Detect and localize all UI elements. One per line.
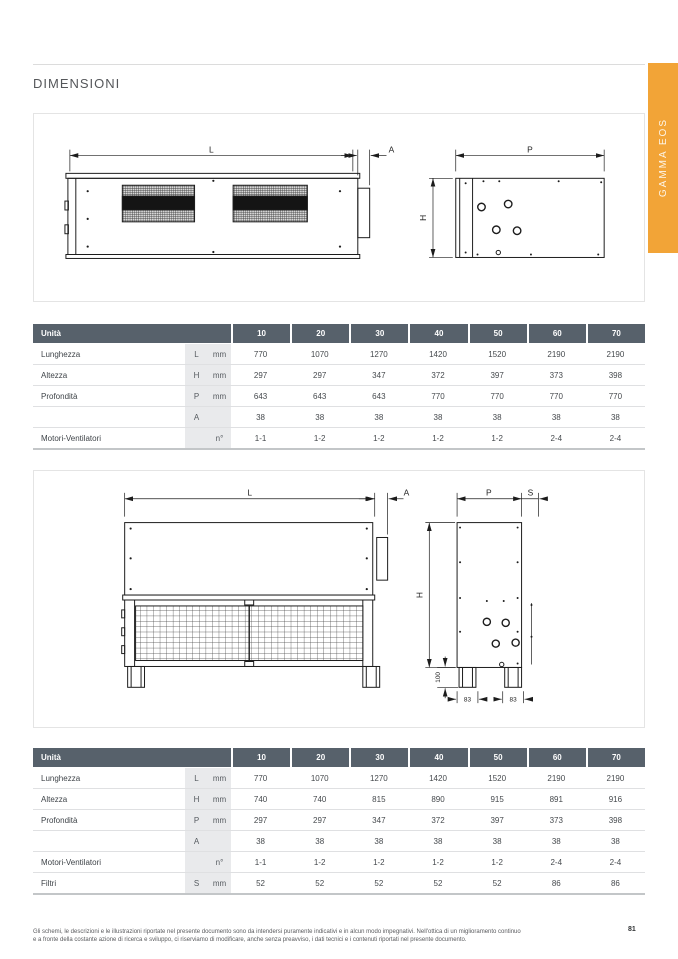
table-header-size-column: 20 <box>290 748 349 767</box>
row-unit: mm <box>208 344 231 364</box>
row-label: Altezza <box>33 789 185 809</box>
dim-label-foot-height: 100 <box>435 672 442 683</box>
cell-value: 1420 <box>408 344 467 364</box>
row-symbol: A <box>185 407 208 427</box>
page-number: 81 <box>628 926 636 933</box>
cell-value: 643 <box>349 386 408 406</box>
row-symbol <box>185 852 208 872</box>
row-unit: mm <box>208 365 231 385</box>
row-unit: mm <box>208 386 231 406</box>
cell-value: 38 <box>468 407 527 427</box>
cell-value: 770 <box>586 386 645 406</box>
diagram-floor-unit: L A P S H 100 83 83 <box>33 470 645 728</box>
cell-value: 1-2 <box>290 428 349 448</box>
cell-value: 38 <box>231 407 290 427</box>
cell-value: 2190 <box>527 344 586 364</box>
table-row: ProfonditàPmm643643643770770770770 <box>33 386 645 407</box>
table-header-size-column: 60 <box>527 748 586 767</box>
cell-value: 2190 <box>586 344 645 364</box>
cell-value: 398 <box>586 365 645 385</box>
row-symbol: P <box>185 810 208 830</box>
diagram-ducted-unit: L A P H <box>33 113 645 302</box>
cell-value: 770 <box>231 344 290 364</box>
table-header-row: Unità10203040506070 <box>33 324 645 343</box>
table-header-size-column: 60 <box>527 324 586 343</box>
row-label: Motori-Ventilatori <box>33 852 185 872</box>
row-label: Altezza <box>33 365 185 385</box>
row-symbol: S <box>185 873 208 893</box>
cell-value: 38 <box>408 407 467 427</box>
row-label: Motori-Ventilatori <box>33 428 185 448</box>
cell-value: 1070 <box>290 768 349 788</box>
cell-value: 1-1 <box>231 428 290 448</box>
cell-value: 86 <box>586 873 645 893</box>
row-unit: n° <box>208 852 231 872</box>
row-symbol: H <box>185 789 208 809</box>
table-header-size-column: 40 <box>408 324 467 343</box>
dim-label-depth: P <box>486 487 492 497</box>
row-label <box>33 831 185 851</box>
cell-value: 52 <box>408 873 467 893</box>
row-symbol: H <box>185 365 208 385</box>
cell-value: 297 <box>231 365 290 385</box>
cell-value: 1-2 <box>468 852 527 872</box>
table-row: FiltriSmm52525252528686 <box>33 873 645 895</box>
cell-value: 770 <box>468 386 527 406</box>
cell-value: 1-2 <box>349 428 408 448</box>
row-label: Filtri <box>33 873 185 893</box>
row-symbol: P <box>185 386 208 406</box>
cell-value: 643 <box>231 386 290 406</box>
cell-value: 297 <box>231 810 290 830</box>
cell-value: 2-4 <box>586 852 645 872</box>
cell-value: 1-2 <box>408 428 467 448</box>
cell-value: 38 <box>290 831 349 851</box>
cell-value: 38 <box>349 831 408 851</box>
cell-value: 916 <box>586 789 645 809</box>
table-header-size-column: 10 <box>231 748 290 767</box>
cell-value: 38 <box>468 831 527 851</box>
dim-label-length: L <box>209 145 214 155</box>
cell-value: 891 <box>527 789 586 809</box>
cell-value: 38 <box>408 831 467 851</box>
technical-drawing-top: L A P H <box>34 114 644 301</box>
page-title: DIMENSIONI <box>33 76 120 91</box>
cell-value: 347 <box>349 365 408 385</box>
cell-value: 52 <box>349 873 408 893</box>
table-header-size-column: 20 <box>290 324 349 343</box>
cell-value: 1070 <box>290 344 349 364</box>
table-row: AltezzaHmm740740815890915891916 <box>33 789 645 810</box>
cell-value: 915 <box>468 789 527 809</box>
dim-label-flange: A <box>404 487 410 497</box>
table-row: LunghezzaLmm770107012701420152021902190 <box>33 344 645 365</box>
row-label: Profondità <box>33 386 185 406</box>
cell-value: 347 <box>349 810 408 830</box>
cell-value: 397 <box>468 365 527 385</box>
table-header-size-column: 40 <box>408 748 467 767</box>
cell-value: 38 <box>586 407 645 427</box>
cell-value: 1-1 <box>231 852 290 872</box>
cell-value: 297 <box>290 365 349 385</box>
cell-value: 2-4 <box>527 852 586 872</box>
table-header-size-column: 30 <box>349 748 408 767</box>
table-row: LunghezzaLmm770107012701420152021902190 <box>33 768 645 789</box>
cell-value: 297 <box>290 810 349 830</box>
cell-value: 770 <box>408 386 467 406</box>
cell-value: 1-2 <box>290 852 349 872</box>
cell-value: 1420 <box>408 768 467 788</box>
cell-value: 1270 <box>349 768 408 788</box>
table-header-size-column: 50 <box>468 324 527 343</box>
cell-value: 398 <box>586 810 645 830</box>
cell-value: 2190 <box>586 768 645 788</box>
dim-label-foot-width-left: 83 <box>464 697 472 704</box>
cell-value: 1-2 <box>408 852 467 872</box>
dim-label-filter: S <box>528 487 534 497</box>
cell-value: 397 <box>468 810 527 830</box>
cell-value: 815 <box>349 789 408 809</box>
row-unit <box>208 831 231 851</box>
row-unit: mm <box>208 768 231 788</box>
table-header-row: Unità10203040506070 <box>33 748 645 767</box>
table-header-size-column: 30 <box>349 324 408 343</box>
row-label: Lunghezza <box>33 344 185 364</box>
cell-value: 2190 <box>527 768 586 788</box>
cell-value: 890 <box>408 789 467 809</box>
table-header-size-column: 50 <box>468 748 527 767</box>
table-row: Motori-Ventilatorin°1-11-21-21-21-22-42-… <box>33 428 645 450</box>
table-header-size-column: 10 <box>231 324 290 343</box>
cell-value: 52 <box>468 873 527 893</box>
dim-label-flange: A <box>389 145 395 155</box>
footer-line-2: e a fronte della costante azione di rice… <box>33 936 521 944</box>
cell-value: 38 <box>349 407 408 427</box>
row-unit: mm <box>208 789 231 809</box>
table-header-unit-label: Unità <box>33 748 231 767</box>
cell-value: 1520 <box>468 344 527 364</box>
cell-value: 372 <box>408 810 467 830</box>
dimensions-table-1: Unità10203040506070LunghezzaLmm770107012… <box>33 324 645 450</box>
row-label: Profondità <box>33 810 185 830</box>
dim-label-length: L <box>247 487 252 497</box>
table-row: A38383838383838 <box>33 407 645 428</box>
row-unit: mm <box>208 873 231 893</box>
table-row: Motori-Ventilatorin°1-11-21-21-21-22-42-… <box>33 852 645 873</box>
row-symbol <box>185 428 208 448</box>
cell-value: 2-4 <box>527 428 586 448</box>
top-divider <box>33 64 645 65</box>
catalog-page: DIMENSIONI GAMMA EOS <box>0 0 678 959</box>
row-unit: n° <box>208 428 231 448</box>
cell-value: 38 <box>527 407 586 427</box>
cell-value: 770 <box>231 768 290 788</box>
table-header-size-column: 70 <box>586 748 645 767</box>
cell-value: 52 <box>231 873 290 893</box>
cell-value: 2-4 <box>586 428 645 448</box>
cell-value: 38 <box>231 831 290 851</box>
cell-value: 1520 <box>468 768 527 788</box>
cell-value: 38 <box>290 407 349 427</box>
row-label: Lunghezza <box>33 768 185 788</box>
cell-value: 38 <box>527 831 586 851</box>
dim-label-height: H <box>414 592 424 598</box>
dim-label-depth: P <box>527 145 533 155</box>
cell-value: 38 <box>586 831 645 851</box>
cell-value: 373 <box>527 365 586 385</box>
table-row: ProfonditàPmm297297347372397373398 <box>33 810 645 831</box>
cell-value: 1270 <box>349 344 408 364</box>
row-unit <box>208 407 231 427</box>
dim-label-foot-width-right: 83 <box>510 697 518 704</box>
cell-value: 372 <box>408 365 467 385</box>
cell-value: 1-2 <box>349 852 408 872</box>
cell-value: 740 <box>290 789 349 809</box>
technical-drawing-bottom: L A P S H 100 83 83 <box>34 471 644 727</box>
table-header-unit-label: Unità <box>33 324 231 343</box>
cell-value: 740 <box>231 789 290 809</box>
footer-line-1: Gli schemi, le descrizioni e le illustra… <box>33 928 521 936</box>
dimensions-table-2: Unità10203040506070LunghezzaLmm770107012… <box>33 748 645 895</box>
cell-value: 373 <box>527 810 586 830</box>
table-header-size-column: 70 <box>586 324 645 343</box>
table-row: AltezzaHmm297297347372397373398 <box>33 365 645 386</box>
footer-disclaimer: Gli schemi, le descrizioni e le illustra… <box>33 928 521 944</box>
cell-value: 86 <box>527 873 586 893</box>
row-symbol: L <box>185 768 208 788</box>
table-row: A38383838383838 <box>33 831 645 852</box>
cell-value: 770 <box>527 386 586 406</box>
gamma-eos-side-tab[interactable]: GAMMA EOS <box>648 63 678 253</box>
cell-value: 52 <box>290 873 349 893</box>
gamma-eos-side-tab-label: GAMMA EOS <box>658 118 669 197</box>
row-symbol: L <box>185 344 208 364</box>
row-symbol: A <box>185 831 208 851</box>
row-label <box>33 407 185 427</box>
row-unit: mm <box>208 810 231 830</box>
cell-value: 643 <box>290 386 349 406</box>
dim-label-height: H <box>418 215 428 221</box>
cell-value: 1-2 <box>468 428 527 448</box>
